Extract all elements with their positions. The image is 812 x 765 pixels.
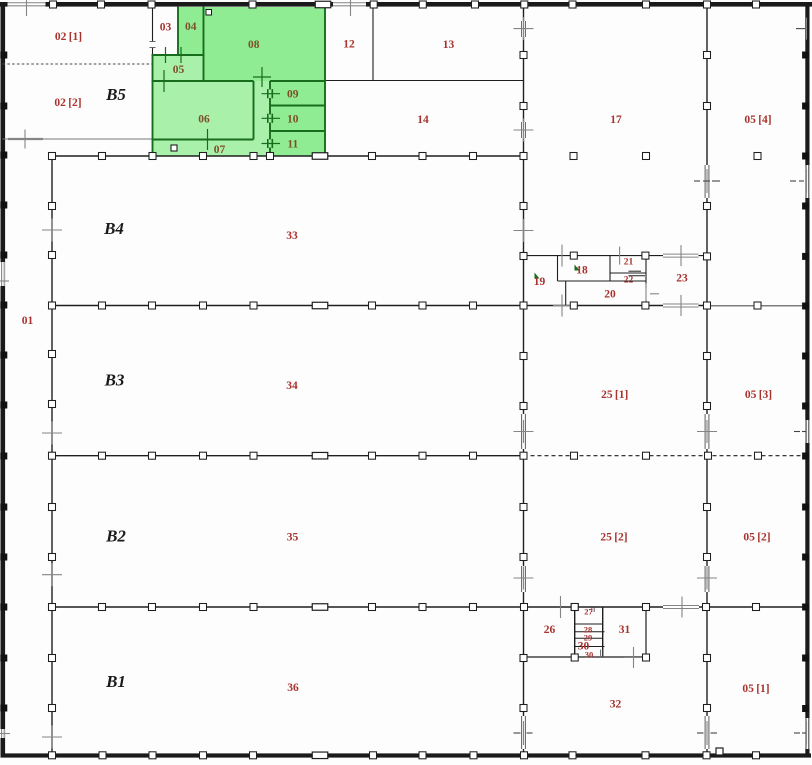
svg-text:23: 23 bbox=[676, 273, 688, 285]
svg-text:05 [2]: 05 [2] bbox=[743, 532, 770, 544]
svg-text:35: 35 bbox=[287, 532, 299, 544]
svg-text:B5: B5 bbox=[105, 85, 126, 104]
svg-text:09: 09 bbox=[287, 89, 299, 101]
svg-text:31: 31 bbox=[619, 624, 631, 636]
svg-text:34: 34 bbox=[286, 380, 298, 392]
svg-text:05 [3]: 05 [3] bbox=[745, 389, 772, 401]
svg-text:02 [2]: 02 [2] bbox=[54, 97, 81, 109]
svg-text:06: 06 bbox=[198, 114, 210, 126]
svg-text:05: 05 bbox=[173, 64, 185, 76]
svg-text:33: 33 bbox=[286, 230, 298, 242]
svg-text:05 [4]: 05 [4] bbox=[744, 114, 771, 126]
svg-text:B2: B2 bbox=[105, 527, 126, 546]
svg-text:11: 11 bbox=[287, 139, 298, 151]
svg-text:36: 36 bbox=[287, 682, 299, 694]
svg-text:27: 27 bbox=[584, 606, 593, 616]
svg-text:25 [1]: 25 [1] bbox=[601, 389, 628, 401]
svg-text:02 [1]: 02 [1] bbox=[55, 31, 82, 43]
svg-text:08: 08 bbox=[248, 39, 260, 51]
svg-text:05 [1]: 05 [1] bbox=[742, 683, 769, 695]
svg-text:26: 26 bbox=[544, 624, 556, 636]
svg-text:B4: B4 bbox=[103, 219, 124, 238]
svg-text:13: 13 bbox=[443, 39, 455, 51]
svg-text:22: 22 bbox=[624, 275, 634, 285]
svg-text:B1: B1 bbox=[105, 672, 126, 691]
svg-text:01: 01 bbox=[22, 315, 34, 327]
svg-text:21: 21 bbox=[624, 257, 634, 267]
svg-text:10: 10 bbox=[287, 113, 299, 125]
svg-text:18: 18 bbox=[576, 265, 588, 277]
svg-text:07: 07 bbox=[214, 144, 226, 156]
svg-text:14: 14 bbox=[417, 114, 429, 126]
svg-text:12: 12 bbox=[343, 39, 355, 51]
svg-text:03: 03 bbox=[160, 22, 172, 34]
svg-text:30: 30 bbox=[585, 649, 594, 659]
svg-text:04: 04 bbox=[185, 21, 197, 33]
svg-text:19: 19 bbox=[534, 276, 546, 288]
svg-text:17: 17 bbox=[610, 114, 622, 126]
svg-text:B3: B3 bbox=[104, 371, 125, 390]
svg-text:20: 20 bbox=[604, 289, 616, 301]
svg-text:25 [2]: 25 [2] bbox=[600, 532, 627, 544]
svg-text:32: 32 bbox=[610, 699, 622, 711]
